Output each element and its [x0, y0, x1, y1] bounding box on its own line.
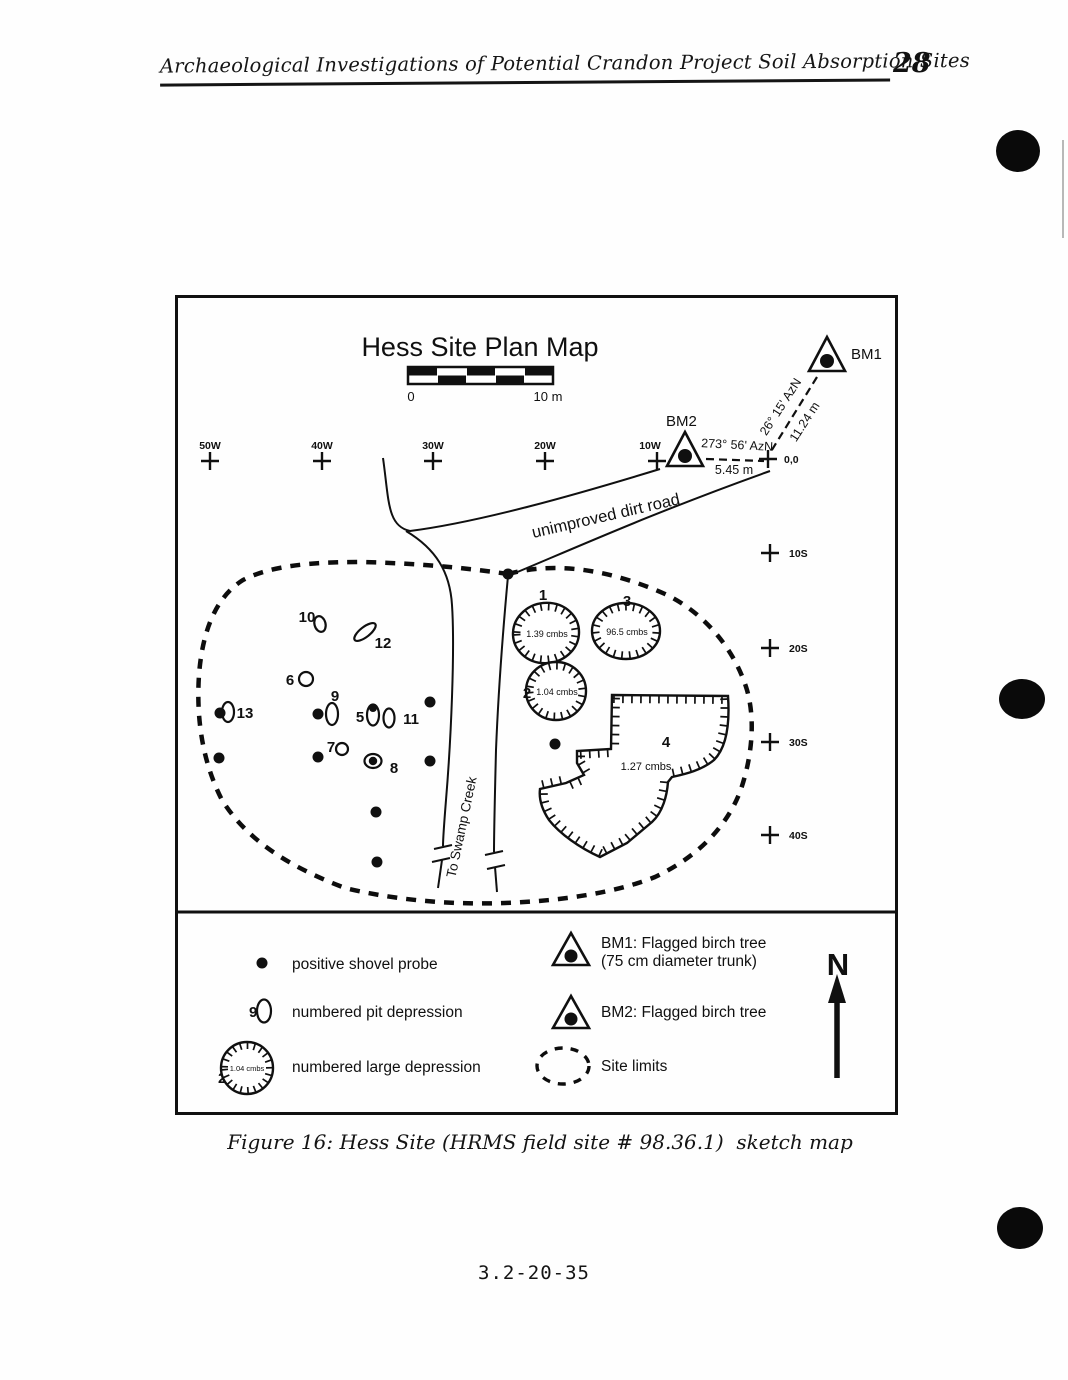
depression-4-number: 4	[662, 734, 671, 751]
bm2-distance-label: 5.45 m	[715, 463, 753, 477]
figure-frame: Hess Site Plan Map 0 10 m 50W 40W 30W 20…	[175, 295, 898, 1115]
legend-bm1-label-line1: BM1: Flagged birch tree	[601, 935, 766, 952]
grid-label-40w: 40W	[311, 440, 333, 452]
site-plan-svg: Hess Site Plan Map 0 10 m 50W 40W 30W 20…	[175, 295, 898, 1115]
bm1-label: BM1	[851, 346, 882, 363]
figure-caption: Figure 16: Hess Site (HRMS field site # …	[175, 1130, 905, 1154]
depression-3-depth: 96.5 cmbs	[606, 627, 648, 637]
pit-7-oval	[336, 743, 348, 755]
north-arrow: N	[827, 947, 849, 1078]
grid-label-30w: 30W	[422, 440, 444, 452]
legend-site-limits-symbol	[537, 1048, 589, 1084]
scan-edge-artifact	[1062, 140, 1064, 238]
grid-cross-40w	[313, 452, 331, 470]
creek-corridor-west-line	[406, 531, 453, 846]
scale-ten-label: 10 m	[534, 389, 563, 404]
pit-8-probe-dot	[369, 757, 377, 765]
scale-bar: 0 10 m	[407, 367, 562, 404]
legend-pit-oval	[257, 1000, 271, 1023]
grid-label-10w: 10W	[639, 440, 661, 452]
running-head-title: Archaeological Investigations of Potenti…	[160, 49, 900, 77]
legend-probe-label: positive shovel probe	[292, 956, 438, 973]
grid-label-30s: 30S	[789, 737, 808, 749]
legend-bm1-symbol	[553, 933, 589, 965]
bm2-label: BM2	[666, 413, 697, 430]
grid-cross-10w	[648, 452, 666, 470]
grid-label-10s: 10S	[789, 548, 808, 560]
pit-depressions: 10 12 6 9 13 5 11 7 8	[222, 609, 419, 777]
grid-label-40s: 40S	[789, 830, 808, 842]
map-title: Hess Site Plan Map	[361, 332, 598, 362]
scale-zero-label: 0	[407, 389, 414, 404]
grid-cross-20s	[761, 639, 779, 657]
bm2-azimuth-label: 273° 56' AzN	[701, 436, 774, 454]
grid-label-20w: 20W	[534, 440, 556, 452]
pit-5-label: 5	[356, 709, 364, 726]
header-rule	[160, 78, 890, 86]
legend-bm2-label: BM2: Flagged birch tree	[601, 1004, 766, 1021]
grid-west: 50W 40W 30W 20W 10W	[199, 440, 666, 470]
grid-cross-30s	[761, 733, 779, 751]
legend-bm1-label-line2: (75 cm diameter trunk)	[601, 953, 757, 970]
pit-11-label: 11	[403, 711, 419, 728]
grid-cross-10s	[761, 544, 779, 562]
legend-site-limits-label: Site limits	[601, 1058, 668, 1075]
depression-1-depth: 1.39 cmbs	[526, 629, 568, 639]
depression-4-depth: 1.27 cmbs	[621, 761, 672, 773]
pit-5-probe-dot	[369, 704, 377, 712]
legend-probe-dot	[257, 958, 268, 969]
pit-6-oval	[299, 672, 313, 686]
creek-label: To Swamp Creek	[444, 775, 480, 879]
depression-2-depth: 1.04 cmbs	[536, 687, 578, 697]
pit-9-oval	[326, 703, 338, 725]
page-header: Archaeological Investigations of Potenti…	[160, 49, 900, 86]
pit-9-label: 9	[331, 688, 339, 705]
grid-cross-20w	[536, 452, 554, 470]
page-footer-code: 3.2-20-35	[0, 1262, 1068, 1284]
bm2-marker	[667, 432, 703, 466]
legend-large-depression-inner-text: 1.04 cmbs	[230, 1064, 265, 1073]
binding-hole-middle	[999, 679, 1045, 719]
grid-south: 10S 20S 30S 40S	[761, 544, 808, 844]
grid-cross-30w	[424, 452, 442, 470]
grid-label-50w: 50W	[199, 440, 221, 452]
binding-hole-top	[996, 130, 1040, 172]
bm1-marker	[809, 337, 845, 371]
grid-cross-50w	[201, 452, 219, 470]
north-label: N	[827, 947, 849, 982]
pit-12-label: 12	[375, 635, 392, 652]
scanned-report-page: Archaeological Investigations of Potenti…	[0, 0, 1068, 1380]
grid-cross-40s	[761, 826, 779, 844]
bm1-distance-label: 11.24 m	[787, 399, 823, 444]
datum-label: 0,0	[784, 454, 799, 466]
legend-large-depression-label: numbered large depression	[292, 1059, 481, 1076]
depression-1-number: 1	[539, 587, 547, 604]
binding-hole-bottom	[997, 1207, 1043, 1249]
legend-bm2-symbol	[553, 996, 589, 1028]
line-break-symbols	[432, 845, 505, 892]
depression-4-outline	[540, 695, 729, 857]
pit-6-label: 6	[286, 672, 294, 689]
creek-corridor-east-line	[494, 576, 508, 852]
page-number: 28	[893, 48, 931, 79]
pit-13-label: 13	[237, 705, 254, 722]
grid-label-20s: 20S	[789, 643, 808, 655]
pit-7-label: 7	[327, 739, 335, 756]
bm2-azimuth-line	[706, 459, 764, 461]
pit-11-oval	[384, 709, 395, 728]
pit-10-label: 10	[299, 609, 316, 626]
depression-2-number: 2	[523, 685, 531, 702]
depression-3-number: 3	[623, 593, 631, 610]
legend: positive shovel probe 9 numbered pit dep…	[218, 933, 849, 1094]
pit-8-label: 8	[390, 760, 398, 777]
legend-pit-label: numbered pit depression	[292, 1004, 463, 1021]
